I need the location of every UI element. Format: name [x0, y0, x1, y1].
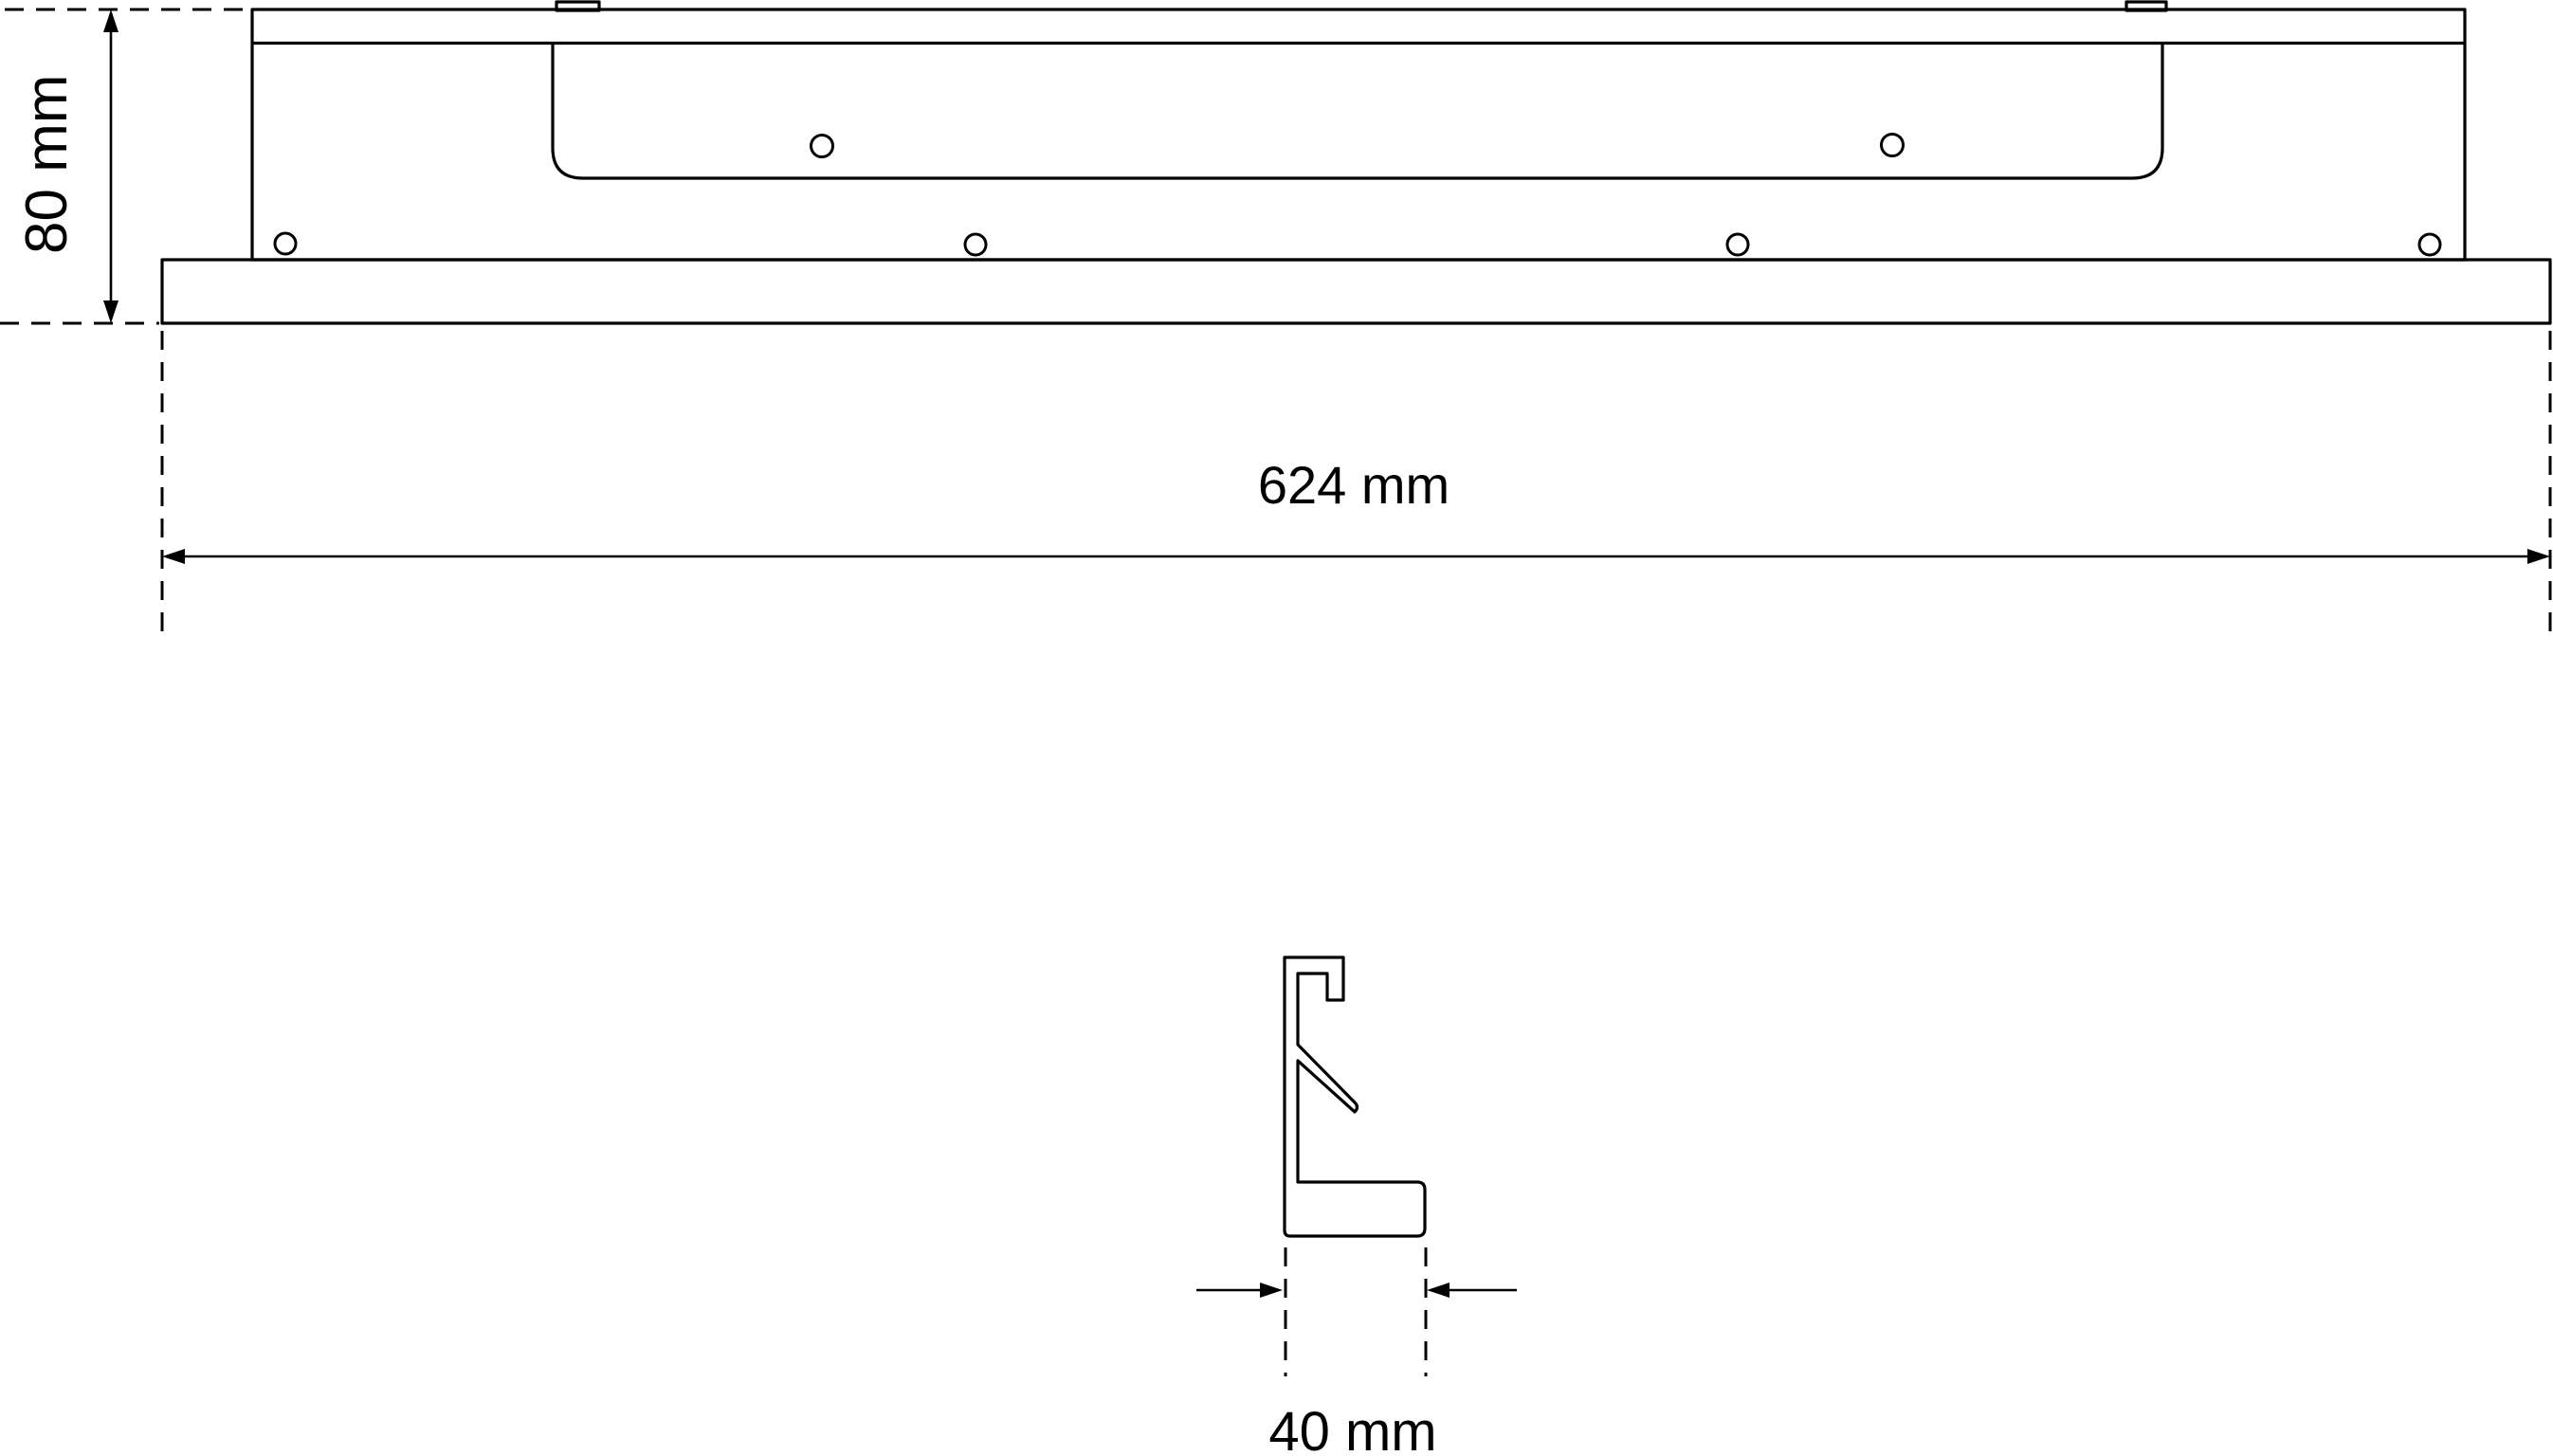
height-arrow-up-icon — [103, 9, 119, 32]
body-hole-2 — [965, 234, 986, 255]
height-dimension-label: 80 mm — [14, 75, 80, 254]
width-dimension-label: 624 mm — [1258, 455, 1450, 515]
recess-hole-right — [1882, 135, 1904, 156]
housing-body-outline — [252, 9, 2465, 260]
mounting-tab-left — [556, 2, 599, 10]
technical-drawing-canvas: 80 mm 624 mm 40 mm — [0, 0, 2553, 1456]
profile-arrow-right-icon — [1427, 1283, 1450, 1298]
width-dimension: 624 mm — [162, 331, 2550, 637]
body-hole-4 — [2419, 234, 2440, 255]
height-arrow-down-icon — [103, 300, 119, 323]
recessed-panel-outline — [553, 43, 2162, 178]
body-hole-1 — [275, 233, 296, 254]
profile-section-view — [1285, 957, 1425, 1236]
profile-arrow-left-icon — [1260, 1283, 1283, 1298]
profile-outline — [1285, 957, 1425, 1236]
profile-width-dimension: 40 mm — [1196, 1247, 1517, 1456]
profile-width-dimension-label: 40 mm — [1268, 1401, 1436, 1456]
recess-hole-left — [811, 136, 833, 157]
body-hole-3 — [1727, 234, 1748, 255]
front-view — [162, 2, 2550, 323]
mounting-tab-right — [2126, 2, 2166, 10]
width-arrow-right-icon — [2527, 549, 2550, 564]
width-arrow-left-icon — [162, 549, 185, 564]
base-plate-outline — [162, 260, 2550, 323]
height-dimension: 80 mm — [0, 9, 245, 323]
